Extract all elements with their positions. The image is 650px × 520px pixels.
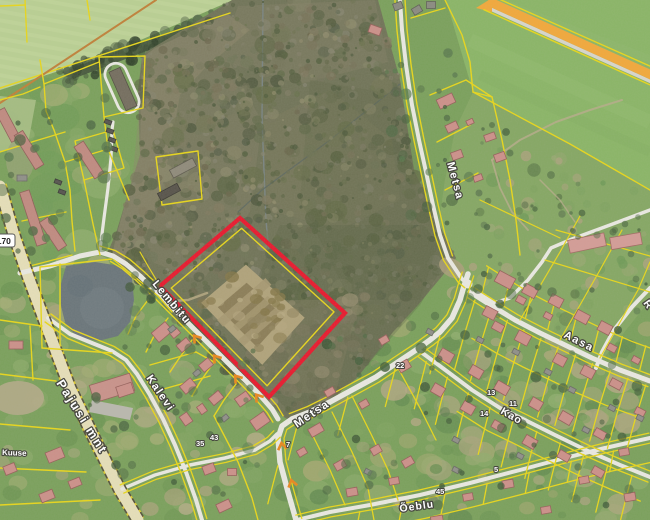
svg-text:13: 13 [487,388,495,397]
svg-text:4170: 4170 [0,236,11,246]
svg-text:35: 35 [196,439,204,448]
svg-text:22: 22 [396,361,404,370]
svg-text:45: 45 [436,487,444,496]
svg-text:43: 43 [210,433,218,442]
svg-text:11: 11 [509,399,517,408]
svg-text:Kuuse: Kuuse [2,448,27,458]
svg-text:5: 5 [494,465,498,474]
svg-text:14: 14 [480,409,489,418]
svg-text:7: 7 [286,440,290,449]
